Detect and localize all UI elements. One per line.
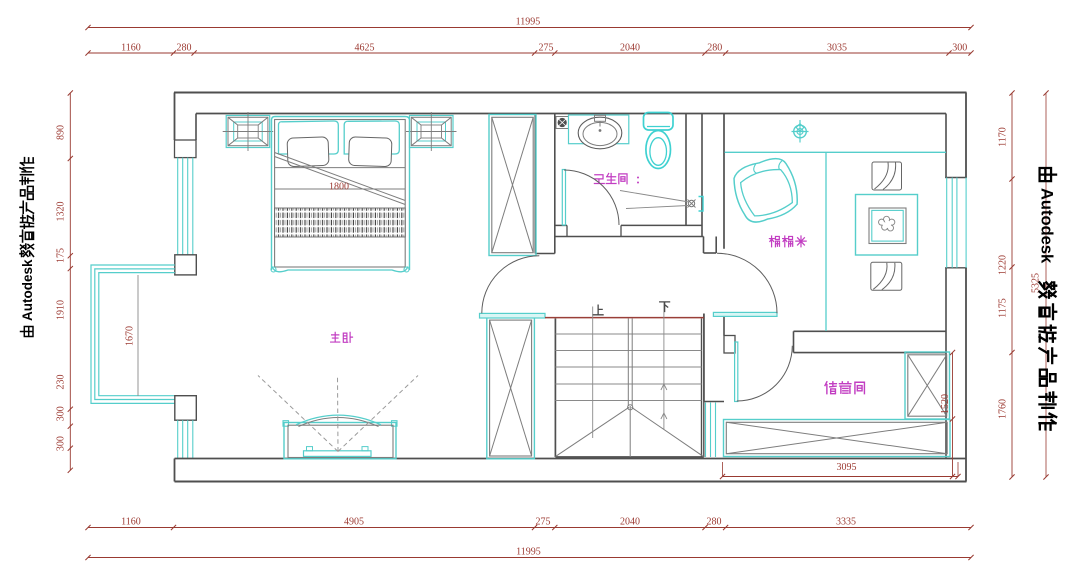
svg-text:1170: 1170 [998, 127, 1009, 147]
svg-text:11995: 11995 [516, 547, 541, 558]
svg-text:300: 300 [56, 406, 67, 421]
svg-text:1160: 1160 [121, 517, 141, 528]
svg-text:890: 890 [56, 125, 67, 140]
svg-text:3095: 3095 [837, 462, 857, 473]
svg-text:1670: 1670 [125, 326, 136, 346]
svg-text:280: 280 [707, 43, 722, 54]
svg-text:2040: 2040 [620, 43, 640, 54]
svg-text:230: 230 [56, 375, 67, 390]
svg-text:1910: 1910 [56, 300, 67, 320]
svg-text:4625: 4625 [355, 43, 375, 54]
svg-text:300: 300 [56, 436, 67, 451]
svg-text:175: 175 [56, 248, 67, 263]
svg-text:3335: 3335 [836, 517, 856, 528]
svg-text:1160: 1160 [121, 43, 141, 54]
svg-text:11995: 11995 [516, 17, 541, 28]
svg-text:4905: 4905 [344, 517, 364, 528]
svg-text:1220: 1220 [998, 255, 1009, 275]
svg-text:Autodesk: Autodesk [1038, 188, 1056, 264]
svg-text:1520: 1520 [940, 394, 951, 414]
svg-text:1800: 1800 [329, 182, 349, 193]
svg-text:280: 280 [177, 43, 192, 54]
svg-text:1175: 1175 [998, 298, 1009, 318]
svg-text:275: 275 [536, 517, 551, 528]
svg-text:275: 275 [539, 43, 554, 54]
svg-text:1320: 1320 [56, 202, 67, 222]
svg-text:1760: 1760 [998, 399, 1009, 419]
svg-text:2040: 2040 [620, 517, 640, 528]
svg-text:280: 280 [707, 517, 722, 528]
svg-text:Autodesk: Autodesk [20, 259, 35, 321]
svg-text:300: 300 [952, 43, 967, 54]
svg-text:3035: 3035 [827, 43, 847, 54]
